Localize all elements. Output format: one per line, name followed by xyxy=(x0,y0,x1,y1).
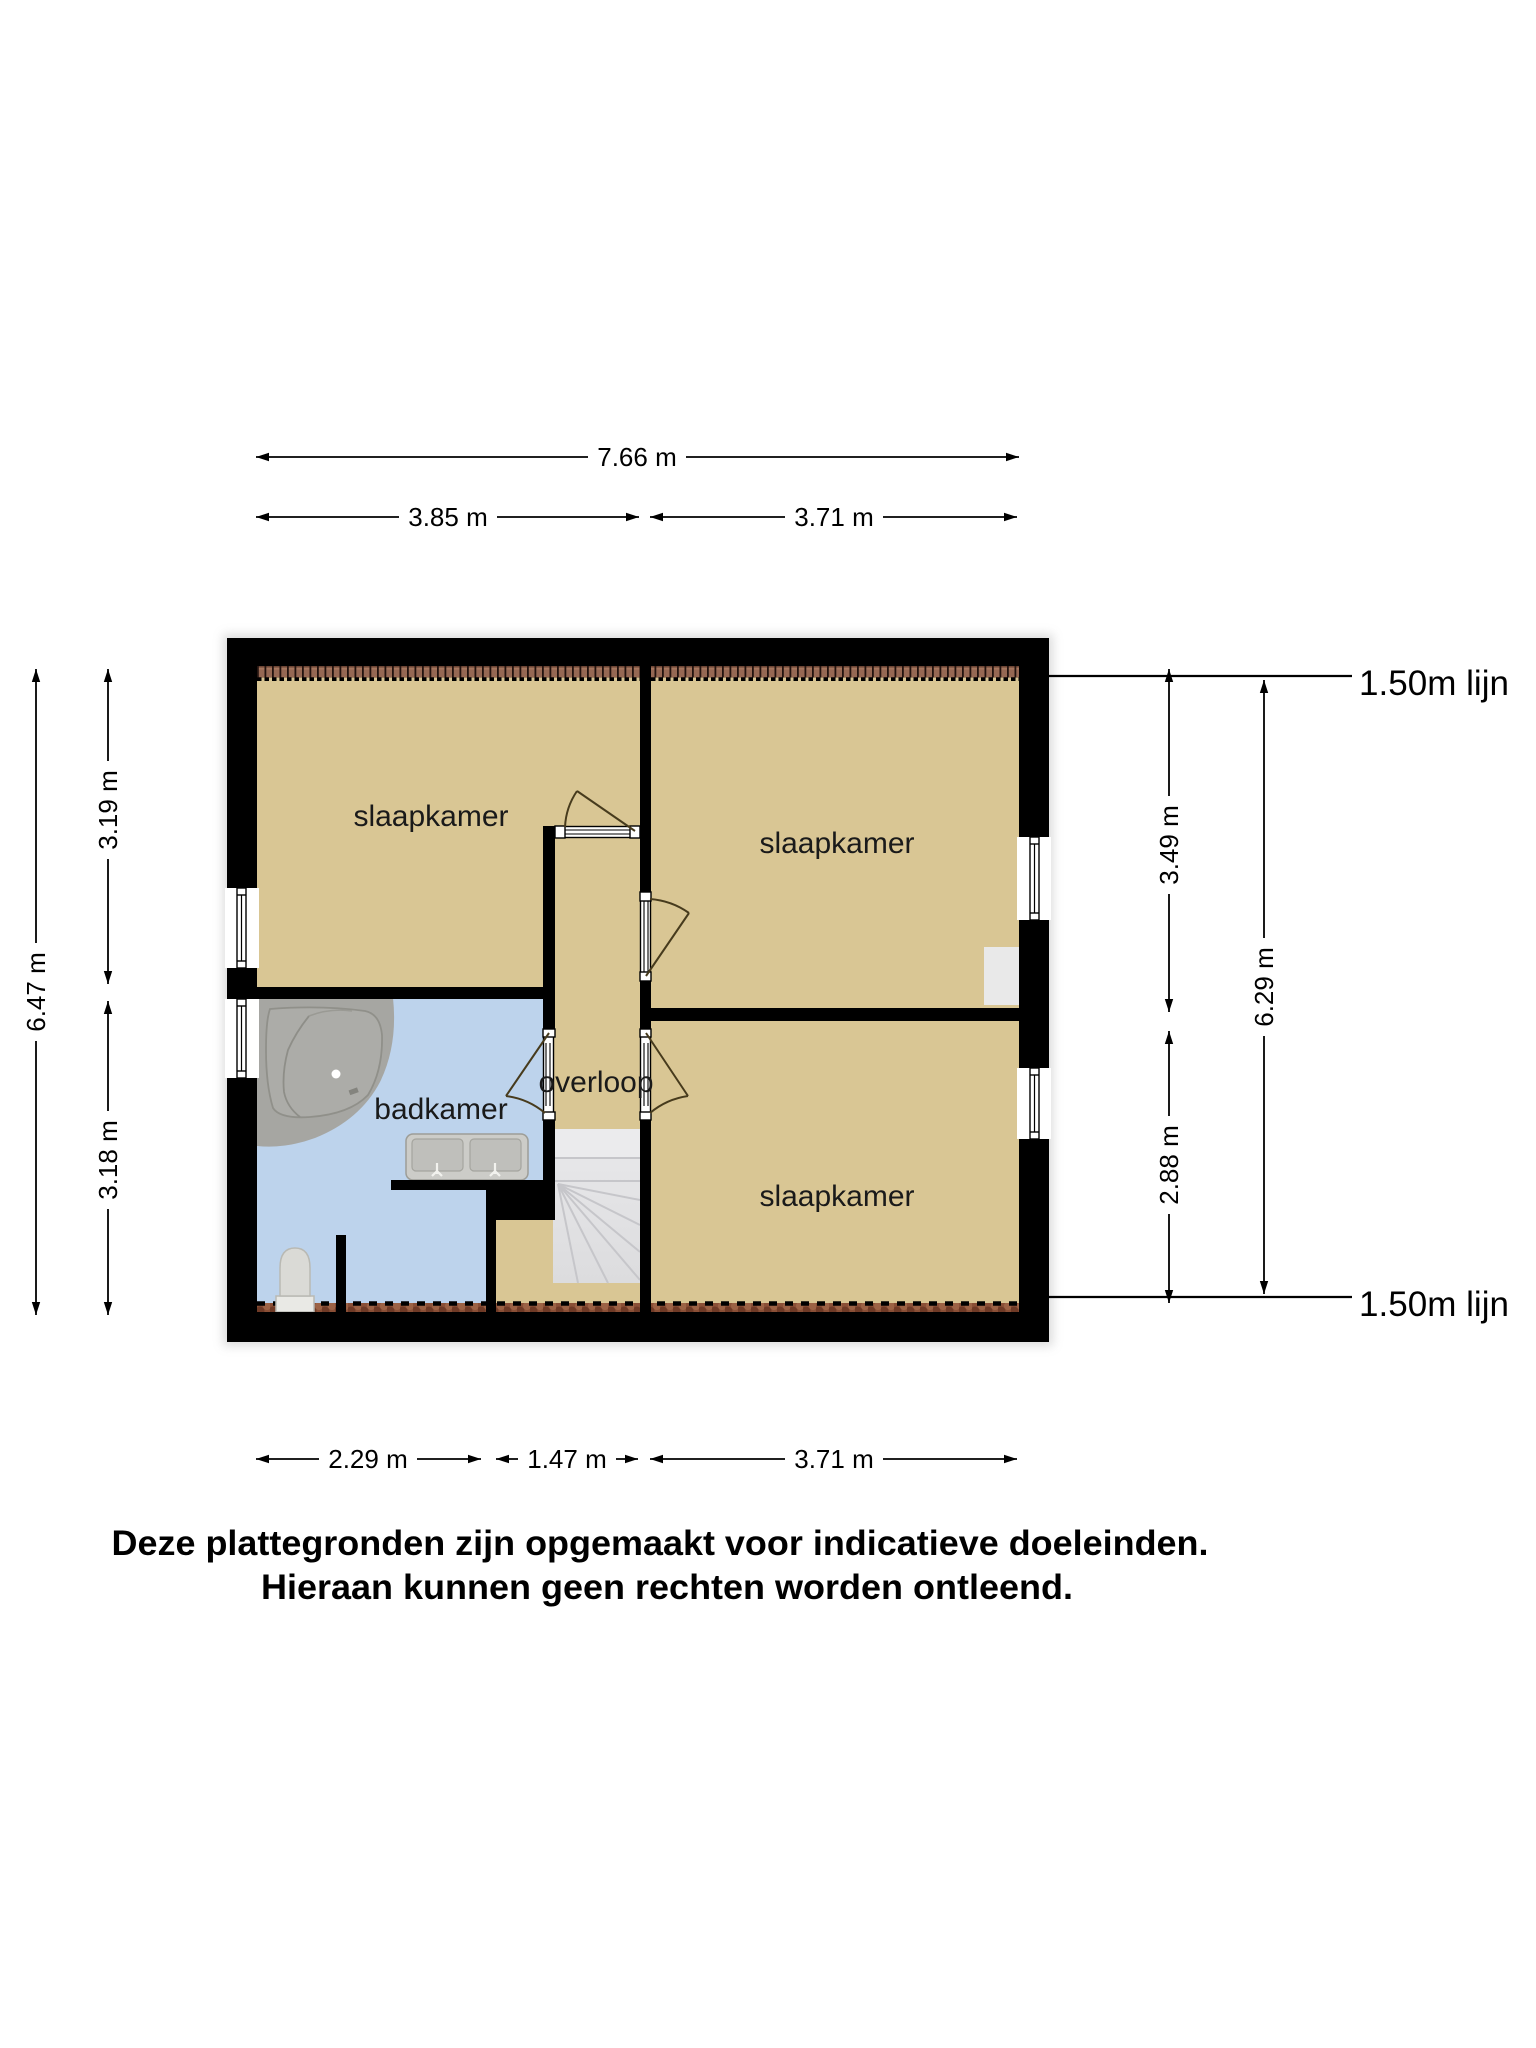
svg-text:slaapkamer: slaapkamer xyxy=(353,800,508,833)
svg-text:2.29 m: 2.29 m xyxy=(328,1444,408,1474)
svg-text:3.85 m: 3.85 m xyxy=(408,502,488,532)
svg-text:overloop: overloop xyxy=(538,1066,653,1099)
svg-text:1.50m lijn: 1.50m lijn xyxy=(1359,1285,1509,1324)
svg-text:3.18 m: 3.18 m xyxy=(93,1120,123,1200)
svg-text:6.47 m: 6.47 m xyxy=(21,952,51,1032)
svg-text:Hieraan kunnen geen rechten wo: Hieraan kunnen geen rechten worden ontle… xyxy=(261,1568,1073,1607)
svg-text:3.49 m: 3.49 m xyxy=(1154,805,1184,885)
svg-text:slaapkamer: slaapkamer xyxy=(759,827,914,860)
svg-text:Deze plattegronden zijn opgema: Deze plattegronden zijn opgemaakt voor i… xyxy=(112,1524,1209,1563)
svg-text:6.29 m: 6.29 m xyxy=(1249,947,1279,1027)
svg-text:3.19 m: 3.19 m xyxy=(93,770,123,850)
svg-text:7.66 m: 7.66 m xyxy=(597,442,677,472)
svg-text:slaapkamer: slaapkamer xyxy=(759,1180,914,1213)
svg-text:3.71 m: 3.71 m xyxy=(794,1444,874,1474)
svg-text:2.88 m: 2.88 m xyxy=(1154,1125,1184,1205)
svg-text:1.47 m: 1.47 m xyxy=(527,1444,607,1474)
svg-text:badkamer: badkamer xyxy=(374,1093,507,1126)
svg-text:3.71 m: 3.71 m xyxy=(794,502,874,532)
svg-text:1.50m lijn: 1.50m lijn xyxy=(1359,664,1509,703)
